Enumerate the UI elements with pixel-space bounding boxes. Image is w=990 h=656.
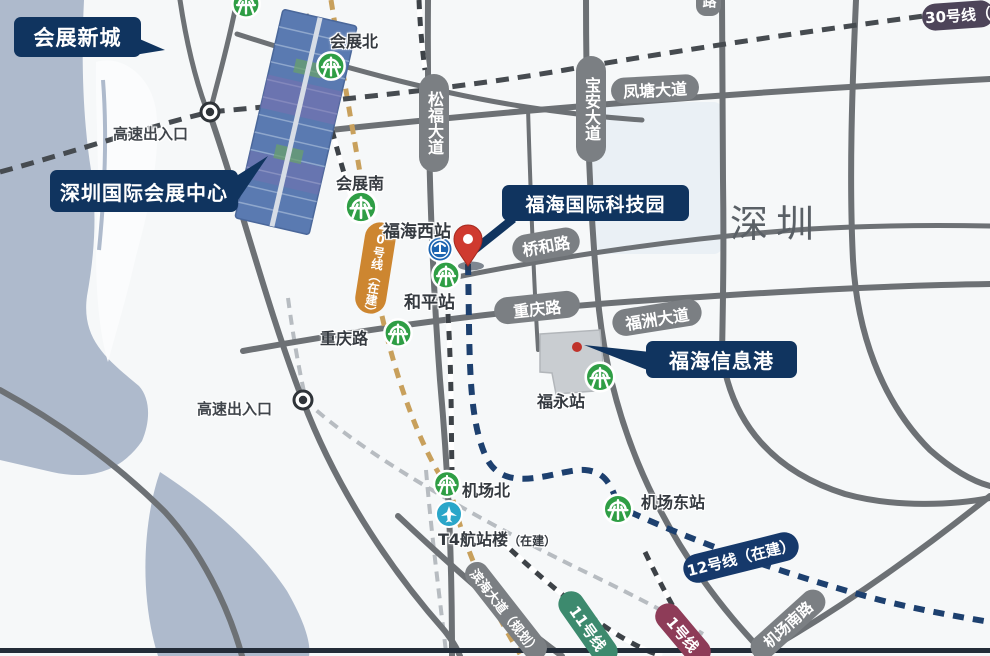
airport-icon[interactable]	[436, 501, 462, 527]
metro-icon[interactable]	[434, 471, 460, 497]
line-pill-30: 30号线（	[921, 0, 990, 31]
metro-icon[interactable]	[317, 52, 344, 79]
metro-icon[interactable]	[384, 319, 411, 346]
metro-icon[interactable]	[604, 495, 633, 524]
station-label-airport-north: 机场北	[462, 477, 510, 501]
callout-convention-center[interactable]: 深圳国际会展中心	[50, 170, 238, 212]
station-label-t4: T4航站楼（在建）	[438, 526, 556, 550]
transit-map: 会展新城 深圳国际会展中心 福海国际科技园 福海信息港 会展北 会展南 福海西站…	[0, 0, 990, 656]
t4-name: T4航站楼	[438, 530, 508, 549]
road-label-chongqing-west: 重庆路	[320, 325, 368, 349]
station-label-huizhan-north: 会展北	[330, 28, 378, 52]
metro-icon[interactable]	[232, 0, 259, 18]
road-pill-fengtang: 凤塘大道	[610, 74, 699, 105]
callout-new-city[interactable]: 会展新城	[14, 17, 141, 57]
station-label-fuhai-west: 福海西站	[383, 217, 451, 242]
station-label-heping: 和平站	[404, 288, 455, 313]
callout-info-port[interactable]: 福海信息港	[646, 341, 797, 378]
expressway-exit-label-2: 高速出入口	[197, 398, 272, 419]
city-label-shenzhen: 深圳	[730, 193, 822, 248]
bottom-border	[0, 648, 990, 653]
station-label-fuyong: 福永站	[537, 388, 585, 412]
station-label-airport-east: 机场东站	[641, 489, 705, 513]
road-pill-baoan: 宝安大道	[576, 56, 606, 162]
station-label-huizhan-south: 会展南	[336, 170, 384, 194]
metro-icon[interactable]	[345, 191, 376, 222]
metro-icon[interactable]	[432, 261, 459, 288]
t4-note: （在建）	[508, 534, 556, 548]
metro-icon[interactable]	[586, 363, 615, 392]
map-canvas	[0, 0, 990, 656]
district-patch	[592, 102, 722, 254]
callout-tech-park[interactable]: 福海国际科技园	[502, 185, 689, 221]
road-pill-songfu: 松福大道	[419, 74, 449, 172]
location-pin[interactable]	[454, 225, 484, 271]
info-port-dot	[572, 342, 582, 352]
expressway-exit-label-1: 高速出入口	[113, 123, 188, 144]
road-pill-partial-top: 路	[696, 0, 721, 16]
